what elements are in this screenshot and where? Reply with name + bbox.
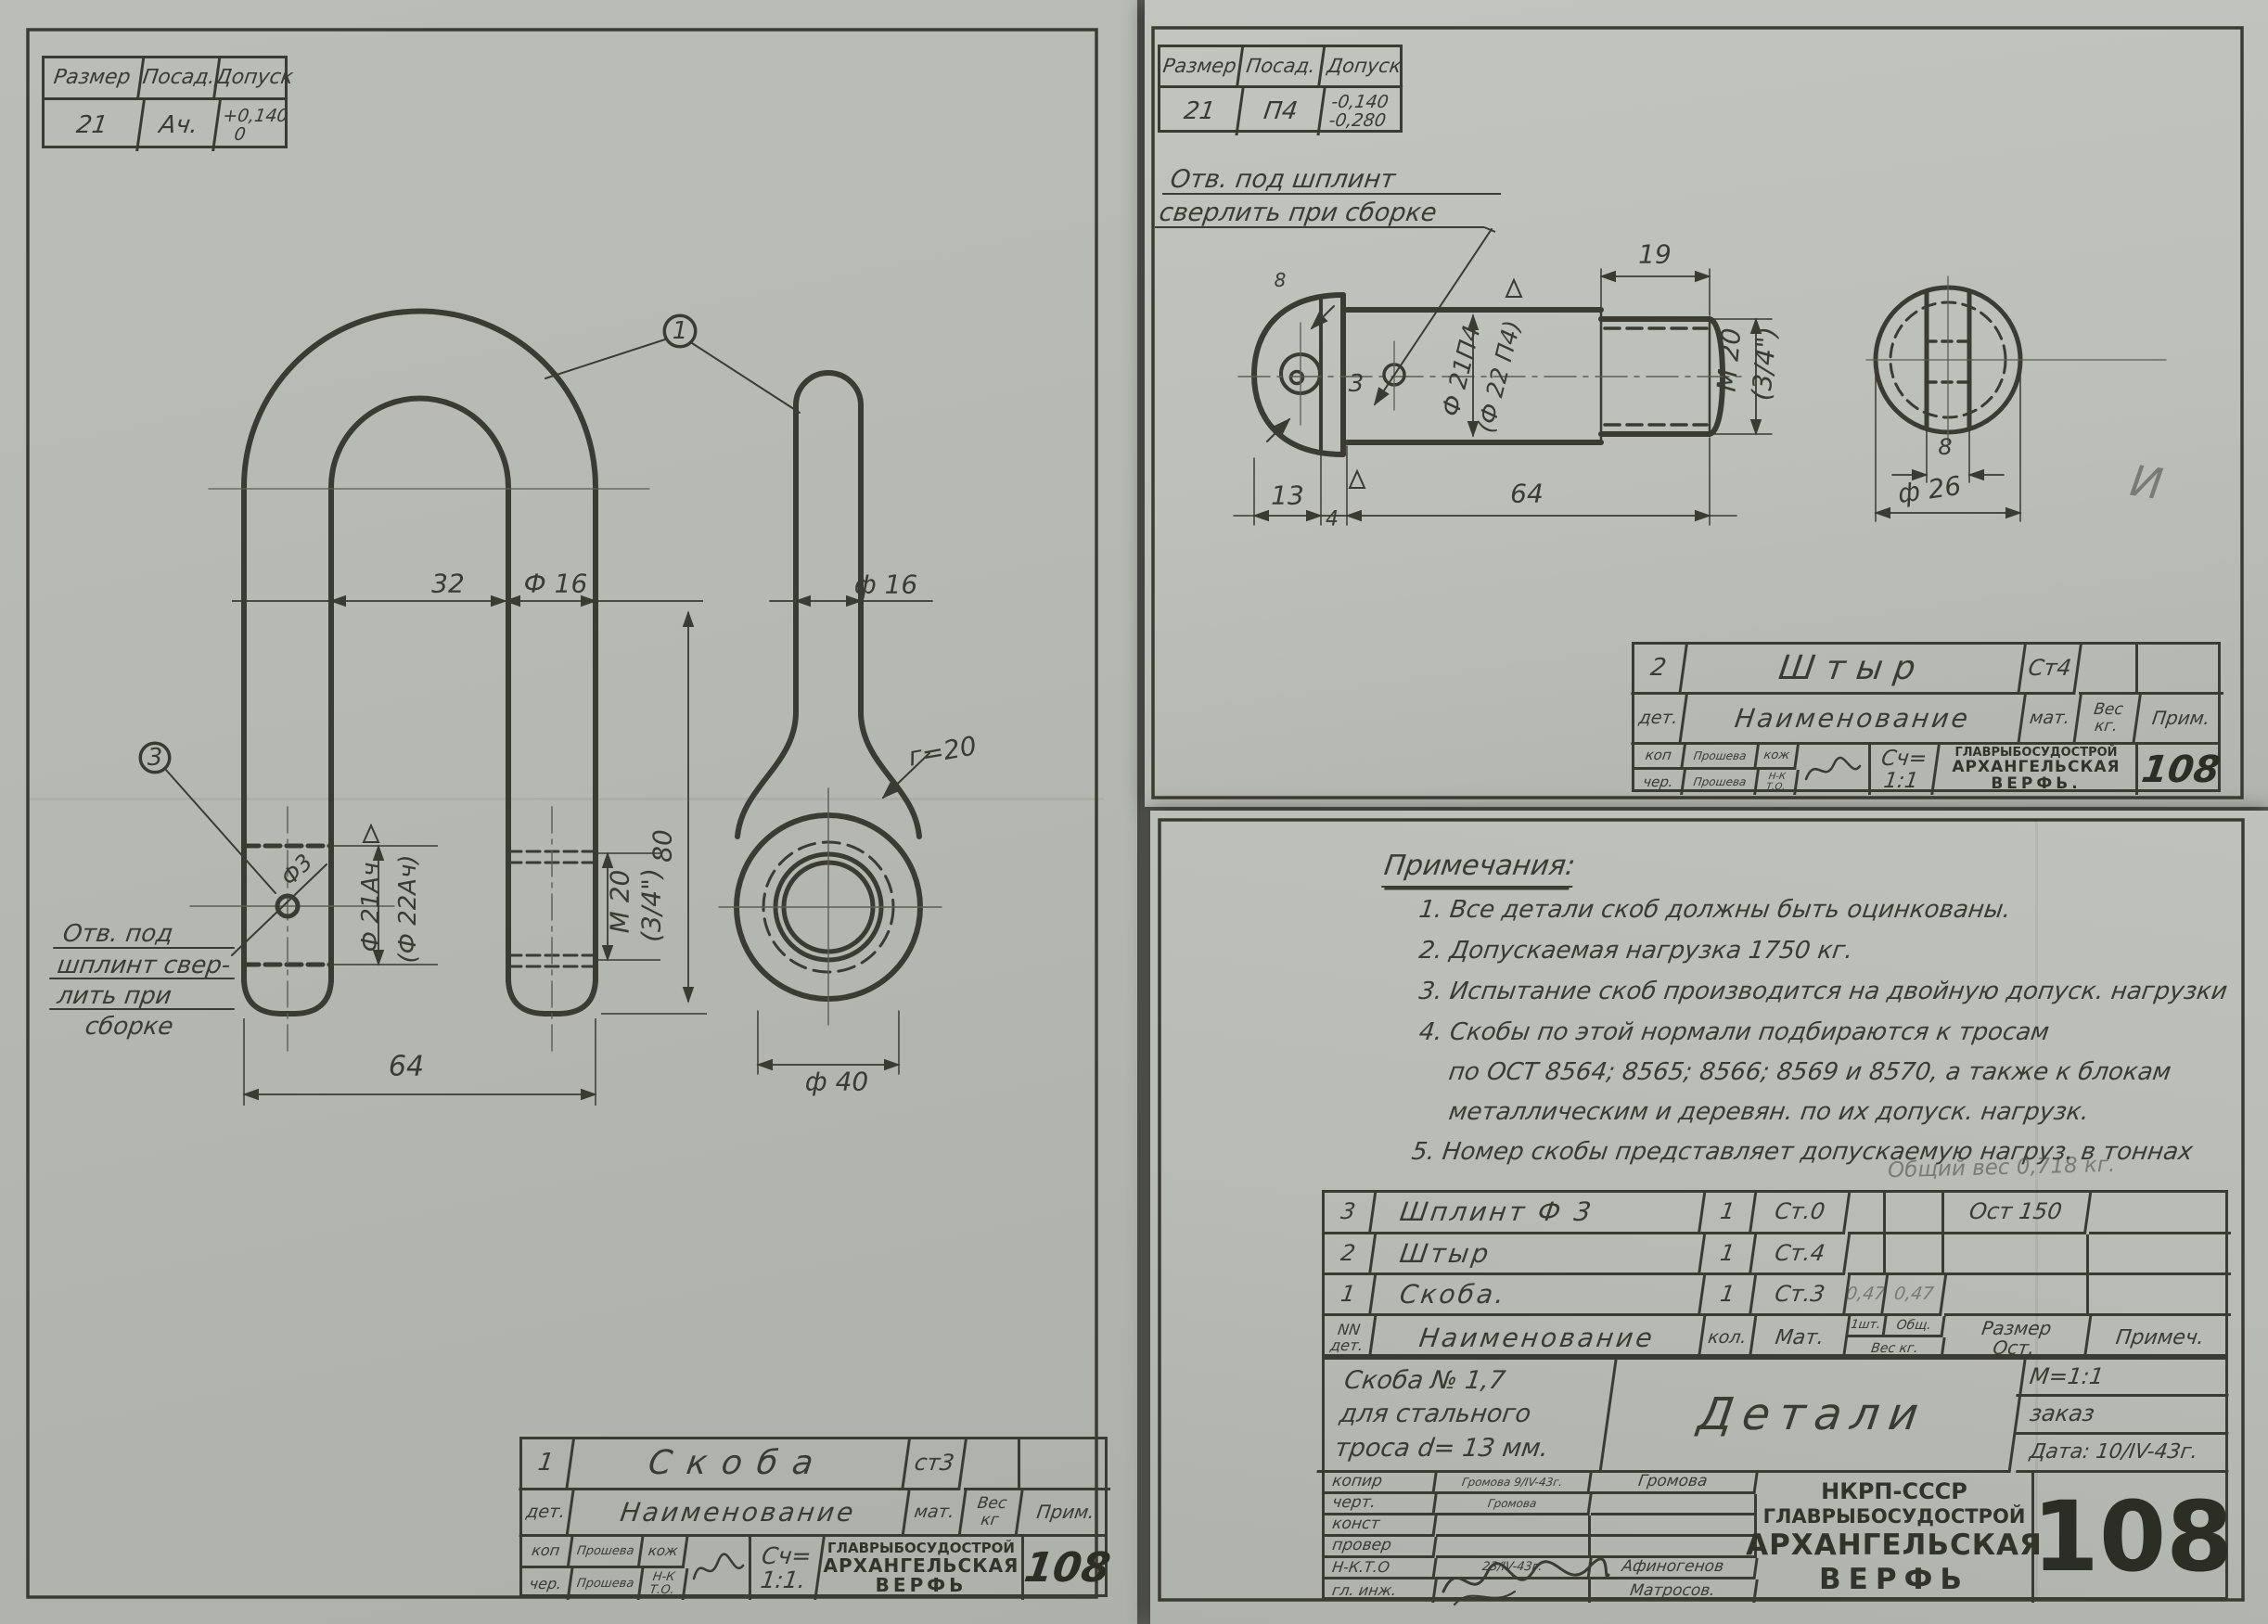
header-mat: мат.: [2019, 695, 2082, 745]
fit-header-fit: Посад.: [139, 58, 221, 100]
row-size: [1944, 1275, 2089, 1316]
parts-header-qty: кол.: [1700, 1316, 1758, 1360]
cher-label: чер.: [1633, 770, 1686, 795]
pin-note-line-1: Отв. под шплинт: [1169, 165, 1397, 194]
part-material: ст3: [903, 1439, 967, 1490]
row-name: Скоба.: [1371, 1275, 1706, 1316]
row-mat: Ст.4: [1751, 1234, 1851, 1275]
parts-header-no: NNдет.: [1322, 1316, 1377, 1360]
staff-sign: Громова: [1434, 1494, 1592, 1515]
nkto-label: Н-КТ.О.: [640, 1568, 689, 1600]
signature-scribble-cell: [1798, 745, 1871, 795]
header-prim: Прим.: [2134, 695, 2227, 745]
row-no: 2: [1322, 1234, 1377, 1275]
fit-fit-value: Ач.: [138, 100, 222, 151]
staff-label: конст: [1323, 1515, 1437, 1537]
staff-name: Матросов.: [1589, 1579, 1759, 1603]
staff-label: черт.: [1323, 1494, 1437, 1515]
parts-header-mat: Мат.: [1751, 1316, 1852, 1360]
cher-signature: Прошева: [1683, 770, 1760, 795]
part-weight-value: [964, 1439, 1020, 1490]
header-det: дет.: [1631, 695, 1688, 745]
fit-header-size: Размер: [42, 58, 145, 100]
fit-header-tol: Допуск: [1320, 47, 1408, 88]
kop-signature: Прошева: [1683, 745, 1760, 770]
nkto-label: Н-КТ.О.: [1756, 770, 1800, 795]
left-fit-table: Размер Посад. Допуск 21 Ач. +0,1400: [42, 56, 288, 148]
dim-gap-4: 4: [1326, 508, 1339, 531]
chief-engineer-signature-scribble: [1436, 1547, 1612, 1612]
dim-height-80: 80: [647, 829, 678, 863]
organization-name: НКРП-СССР ГЛАВРЫБОСУДОСТРОЙ АРХАНГЕЛЬСКА…: [1757, 1473, 2034, 1603]
part-number: 2: [1631, 645, 1688, 695]
parts-header-size: РазмерОст.: [1941, 1316, 2093, 1360]
part-name: Скоба: [568, 1439, 911, 1490]
staff-label: провер: [1323, 1537, 1437, 1558]
fit-header-tol: Допуск: [215, 58, 293, 100]
staff-label: гл. инж.: [1323, 1579, 1438, 1603]
shackle-side-view: [719, 373, 942, 1074]
factory-name: ГЛАВРЫБОСУДОСТРОЙ АРХАНГЕЛЬСКАЯ ВЕРФЬ.: [1937, 745, 2138, 795]
dim-bar-diameter: Ф 16: [524, 569, 588, 599]
date-value: Дата: 10/IV-43г.: [2016, 1435, 2234, 1473]
dim-side-bar: ф 16: [854, 569, 917, 600]
fit-tolerance-value: -0,140-0,280: [1319, 88, 1408, 135]
dim-inner-width: 32: [431, 569, 465, 599]
row-weight-total: [1886, 1193, 1944, 1234]
row-qty: 1: [1700, 1275, 1757, 1316]
note-line-3: лить при: [56, 982, 173, 1010]
header-prim: Прим.: [1017, 1490, 1113, 1537]
scale-value: М=1:1: [2016, 1360, 2234, 1397]
row-weight-total: [1886, 1234, 1944, 1275]
fit-size-value: 21: [1157, 88, 1244, 135]
staff-name: Афиногенов: [1589, 1558, 1758, 1579]
sheet-number: 108: [2134, 745, 2227, 795]
header-det: дет.: [519, 1490, 574, 1537]
part-weight-value: [2079, 645, 2138, 695]
row-weight-unit: [1848, 1193, 1886, 1234]
signature-scribble: [1802, 751, 1864, 788]
row-note: [2089, 1275, 2231, 1316]
right-fit-table: Размер Посад. Допуск 21 П4 -0,140-0,280: [1158, 45, 1403, 133]
notes-item-2: 2. Допускаемая нагрузка 1750 кг.: [1417, 937, 1855, 965]
kop-signature: Прошева: [570, 1537, 645, 1568]
header-name: Наименование: [1681, 695, 2027, 745]
doc-type: Детали: [1601, 1360, 2026, 1473]
dim-pin-hole-d22: (Ф 22Ач): [394, 854, 422, 963]
signature-scribble-cell: [686, 1537, 751, 1600]
row-name: Штыр: [1371, 1234, 1706, 1275]
staff-label: Н-К.Т.О: [1323, 1558, 1437, 1579]
staff-name: Громова: [1589, 1473, 1758, 1494]
row-qty: 1: [1700, 1193, 1757, 1234]
notes-heading: Примечания:: [1381, 850, 1577, 888]
kozh-label: кож: [1756, 745, 1800, 770]
balloon-1: 1: [663, 314, 697, 348]
row-note: [2089, 1193, 2231, 1234]
row-name: Шплинт Ф 3: [1371, 1193, 1706, 1234]
part-number: 1: [519, 1439, 575, 1490]
staff-name: [1591, 1494, 1757, 1515]
parts-header-name: Наименование: [1371, 1316, 1707, 1360]
row-weight-unit: 0,47: [1845, 1275, 1889, 1316]
dim-head-slot-8: 8: [1275, 269, 1287, 291]
sheet-number: 108: [1019, 1537, 1115, 1600]
staff-sign: [1436, 1515, 1591, 1537]
dim-head-13: 13: [1271, 480, 1304, 511]
staff-name: [1591, 1515, 1757, 1537]
notes-item-4c: металлическим и деревян. по их допуск. н…: [1447, 1098, 2091, 1126]
row-note: [2089, 1234, 2231, 1275]
drawing-sheet-108: 32 Ф 16 80 64 Ф 21Ач (Ф 22Ач) М 20 (3/4"…: [0, 0, 2268, 1624]
dim-thread-length-19: 19: [1638, 239, 1672, 270]
part-note-value: [2138, 645, 2223, 695]
kozh-label: кож: [640, 1537, 689, 1568]
fit-header-fit: Посад.: [1238, 47, 1326, 88]
kop-label: коп: [1633, 745, 1686, 770]
part-material: Ст4: [2019, 645, 2082, 695]
header-weight: Вескг: [960, 1490, 1023, 1537]
order-label: заказ: [2016, 1397, 2234, 1435]
row-weight-total: 0,47: [1883, 1275, 1947, 1316]
staff-sign: Громова 9/IV-43г.: [1434, 1473, 1592, 1494]
left-title-block: 1 Скоба ст3 дет. Наименование мат. Вескг…: [519, 1437, 1108, 1597]
factory-name: ГЛАВРЫБОСУДОСТРОЙ АРХАНГЕЛЬСКАЯ ВЕРФЬ: [821, 1537, 1024, 1600]
dim-thread-34: (3/4"): [636, 868, 667, 942]
dim-end-slot-8: 8: [1938, 434, 1952, 460]
scale-cell: Сч=1:1: [1867, 745, 1941, 795]
note-line-4: сборке: [83, 1013, 175, 1041]
pin-note-line-2: сверлить при сборке: [1158, 198, 1439, 227]
row-size: [1944, 1234, 2089, 1275]
row-qty: 1: [1700, 1234, 1757, 1275]
cher-signature: Прошева: [570, 1568, 645, 1600]
row-mat: Ст.3: [1751, 1275, 1851, 1316]
note-line-1: Отв. под: [61, 920, 175, 948]
staff-label: копир: [1323, 1473, 1437, 1494]
dim-thread-m20: М 20: [605, 870, 635, 934]
fit-header-size: Размер: [1158, 47, 1244, 88]
staff-name: [1591, 1537, 1757, 1558]
fit-size-value: 21: [41, 100, 146, 151]
dim-pin-34: (3/4"): [1746, 326, 1783, 402]
note-line-2: шплинт свер-: [56, 952, 232, 979]
balloon-3: 3: [139, 742, 171, 774]
header-name: Наименование: [568, 1490, 910, 1537]
part-name: Штыр: [1681, 645, 2027, 695]
notes-item-4: 4. Скобы по этой нормали подбираются к т…: [1417, 1018, 2051, 1046]
row-mat: Ст.0: [1751, 1193, 1851, 1234]
pin-title-block: 2 Штыр Ст4 дет. Наименование мат. Вескг.…: [1632, 642, 2221, 792]
dim-outer-width-64: 64: [389, 1051, 424, 1083]
fit-fit-value: П4: [1237, 88, 1326, 135]
cher-label: чер.: [520, 1568, 574, 1600]
dim-pin-hole-d21: Ф 21Ач: [357, 863, 385, 953]
parts-header-note: Примеч.: [2086, 1316, 2235, 1360]
subject-cell: Скоба № 1,7 для стального троса d= 13 мм…: [1316, 1360, 1617, 1473]
fit-tolerance-value: +0,1400: [214, 100, 294, 151]
parts-header-w-unit: 1шт.: [1846, 1316, 1887, 1337]
row-no: 3: [1322, 1193, 1377, 1234]
dim-pin-m20: М 20: [1711, 326, 1748, 392]
notes-item-1: 1. Все детали скоб должны быть оцинкован…: [1417, 896, 2013, 924]
part-note-value: [1020, 1439, 1110, 1490]
drawing-number-108: 108: [2034, 1473, 2231, 1603]
row-no: 1: [1322, 1275, 1377, 1316]
dim-pin-hole-3: 3: [1349, 370, 1365, 398]
parts-header-w-total: Общ.: [1884, 1316, 1945, 1337]
dim-shaft-64: 64: [1510, 479, 1544, 509]
row-size: Ост 150: [1941, 1193, 2092, 1234]
parts-table: 3 Шплинт Ф 3 1 Ст.0 Ост 150 2 Штыр 1 Ст.…: [1322, 1190, 2228, 1357]
notes-item-4b: по ОСТ 8564; 8565; 8566; 8569 и 8570, а …: [1447, 1058, 2172, 1086]
dim-eye-d40: ф 40: [805, 1067, 868, 1097]
row-weight-unit: [1848, 1234, 1886, 1275]
header-weight: Вескг.: [2075, 695, 2142, 745]
signature-scribble: [690, 1547, 746, 1590]
notes-item-3: 3. Испытание скоб производится на двойну…: [1417, 978, 2229, 1005]
kop-label: коп: [520, 1537, 574, 1568]
header-mat: мат.: [903, 1490, 967, 1537]
scale-cell: Сч=1:1.: [747, 1537, 826, 1600]
